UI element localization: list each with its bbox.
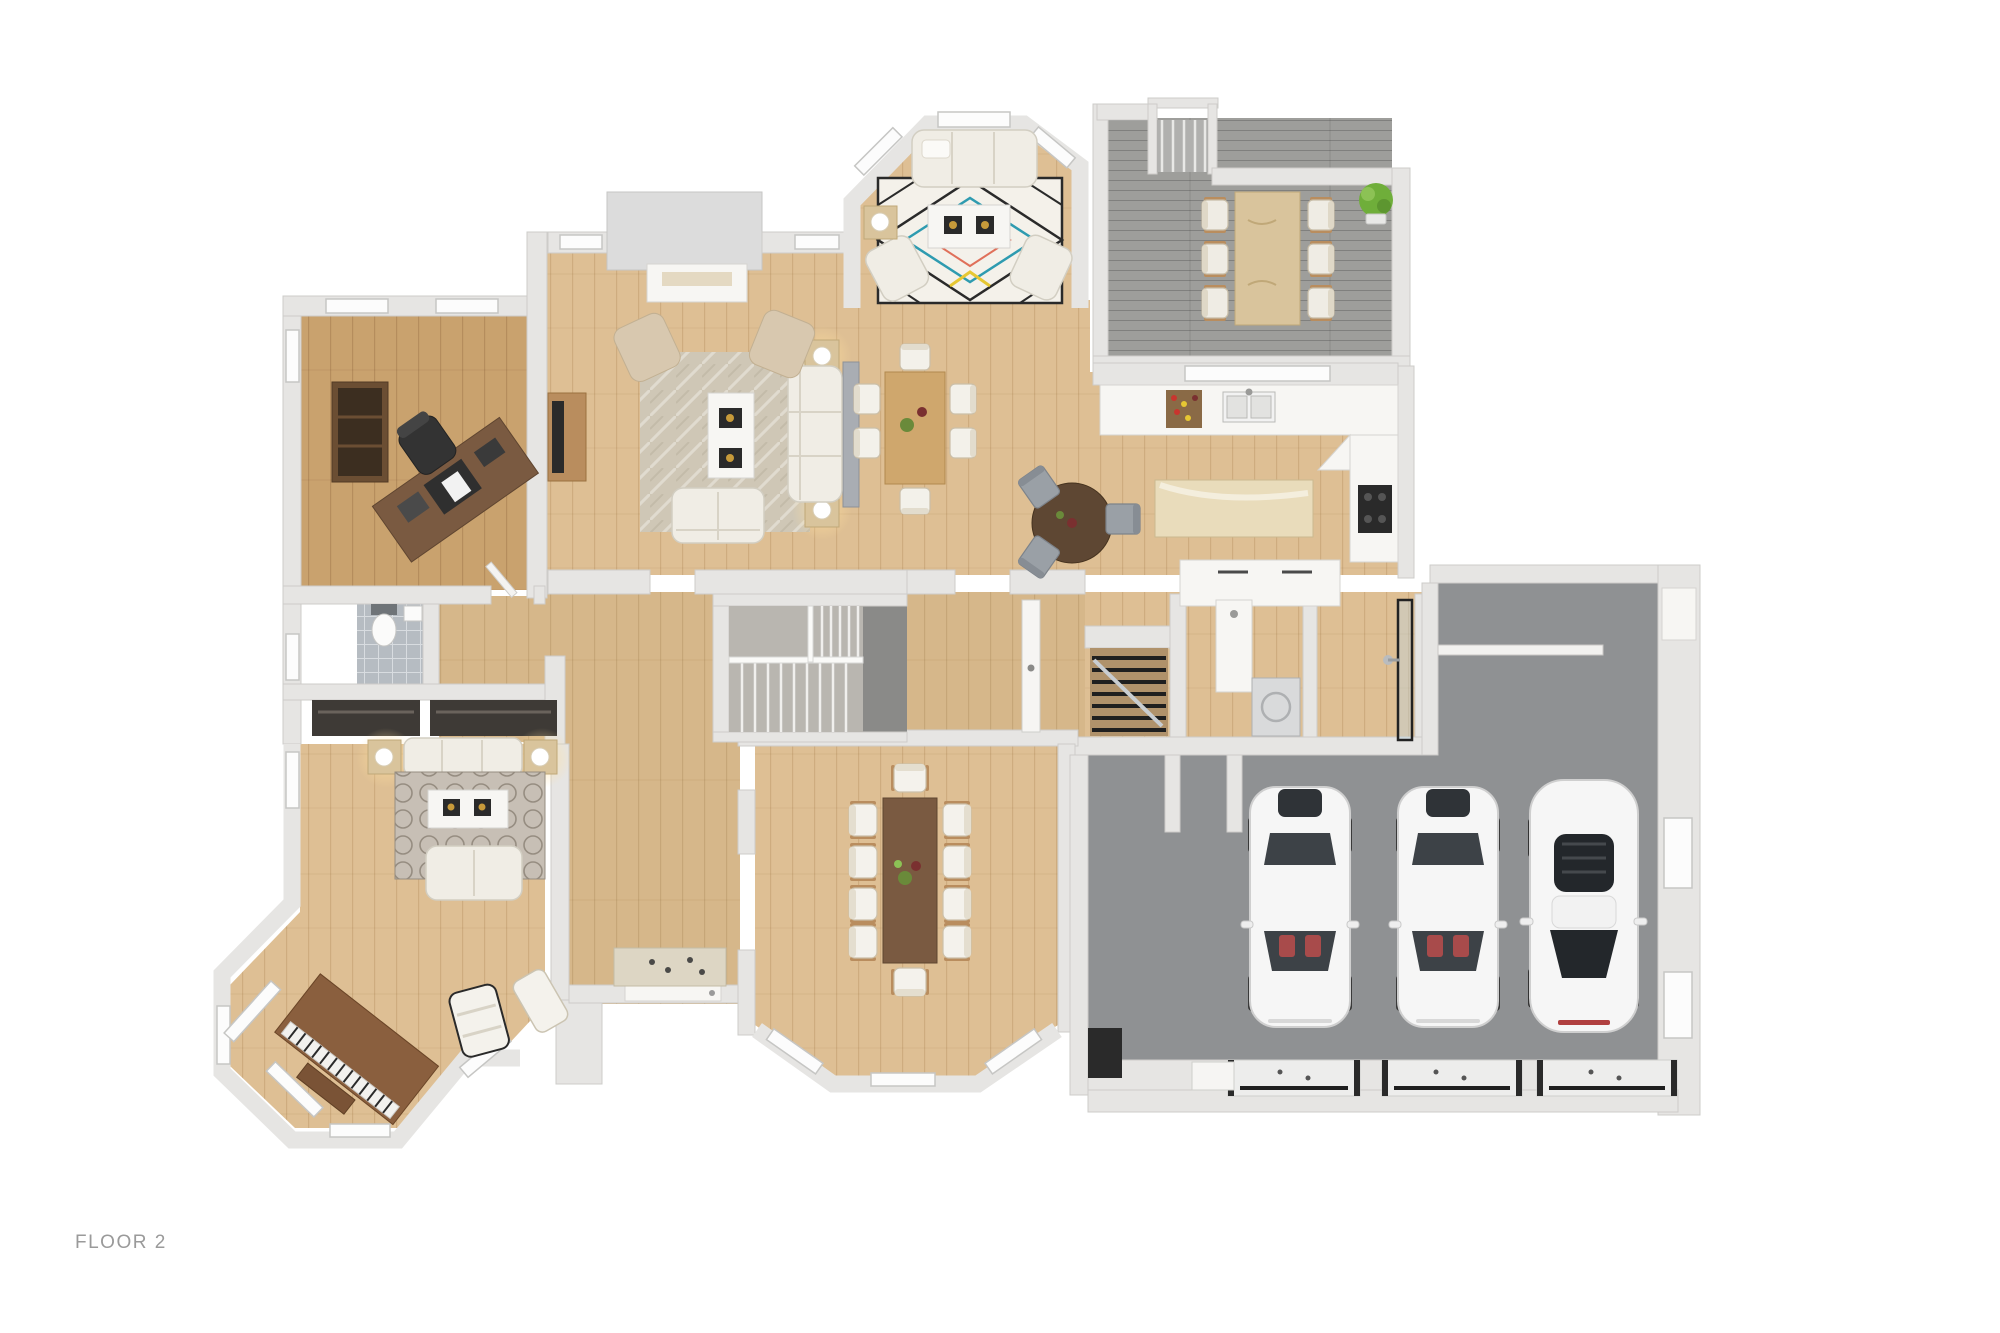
doormat: [614, 948, 726, 986]
garage-service-door: [1192, 1062, 1234, 1090]
stair-upper-flight: [813, 606, 863, 662]
tv: [552, 401, 564, 473]
stair-void: [863, 594, 907, 742]
front-door: [625, 986, 721, 1001]
garage-doors: [1228, 1060, 1677, 1096]
closet-left: [312, 700, 420, 736]
stair-lower-flight: [729, 662, 863, 732]
cooktop: [1358, 485, 1392, 533]
sofa: [788, 366, 842, 502]
toilet-tank: [371, 604, 397, 615]
deck-dining-table: [1235, 192, 1300, 325]
garage-window: [1664, 818, 1692, 888]
workbench: [1088, 1028, 1122, 1078]
powder-sink: [404, 606, 422, 621]
potted-plant: [1359, 183, 1393, 217]
music-sofa: [404, 738, 522, 776]
nook-coffee-table: [928, 205, 1010, 248]
foyer-furniture: [614, 948, 726, 986]
garage-side-door: [1662, 588, 1696, 640]
white-sedan-1: [1241, 787, 1359, 1027]
white-sports-car: [1520, 780, 1647, 1032]
kitchen-window: [1185, 366, 1330, 381]
garage-window: [1664, 972, 1692, 1038]
shower-glass: [1398, 600, 1412, 740]
white-sedan-2: [1389, 787, 1507, 1027]
washer: [1252, 678, 1300, 736]
music-coffee-table: [428, 790, 508, 828]
floor-plan-page: FLOOR 2: [0, 0, 2000, 1333]
casual-dining-table: [885, 372, 945, 484]
floor-plan-rendering: FLOOR 2: [0, 0, 2000, 1333]
floor-label: FLOOR 2: [75, 1232, 167, 1253]
deck-stairs: [1157, 120, 1208, 172]
powder-window: [286, 634, 299, 680]
garage-shelf: [1438, 645, 1603, 655]
lower-cabinets: [1180, 560, 1340, 606]
fireplace-chimney: [607, 192, 762, 270]
toilet: [372, 614, 396, 646]
stair-landing: [729, 606, 813, 662]
